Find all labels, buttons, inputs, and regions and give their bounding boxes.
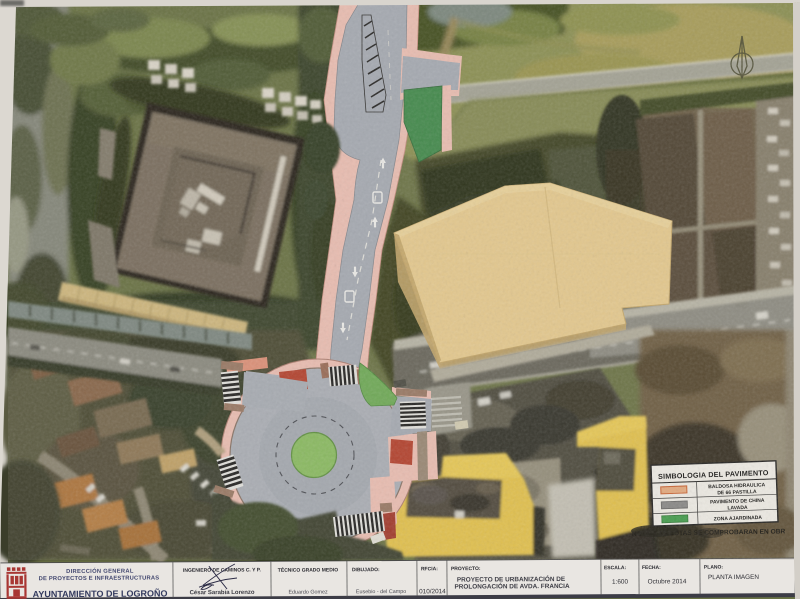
svg-text:DE PROYECTOS E INFRAESTRUCTURA: DE PROYECTOS E INFRAESTRUCTURAS [39,575,160,582]
svg-text:010/2014: 010/2014 [419,588,446,595]
svg-text:AYUNTAMIENTO DE LOGROÑO: AYUNTAMIENTO DE LOGROÑO [33,588,168,599]
svg-text:FECHA:: FECHA: [642,565,661,571]
svg-text:Eduardo Gomez: Eduardo Gomez [288,589,328,595]
svg-text:INGENIERO DE CAMINOS C. Y P.: INGENIERO DE CAMINOS C. Y P. [183,567,261,573]
svg-text:DIBUJADO:: DIBUJADO: [352,567,380,573]
svg-text:PLANTA IMAGEN: PLANTA IMAGEN [708,574,759,581]
svg-text:RFCIA:: RFCIA: [421,566,438,572]
svg-text:PROYECTO:: PROYECTO: [451,566,481,572]
svg-text:Octubre 2014: Octubre 2014 [648,578,687,585]
svg-text:PLANO:: PLANO: [704,565,724,571]
svg-text:ESCALA:: ESCALA: [604,565,627,571]
svg-text:1:600: 1:600 [612,579,628,586]
svg-text:César Sarabia Lorenzo: César Sarabia Lorenzo [190,590,255,596]
svg-text:Eusebio - del Campo: Eusebio - del Campo [356,589,406,595]
